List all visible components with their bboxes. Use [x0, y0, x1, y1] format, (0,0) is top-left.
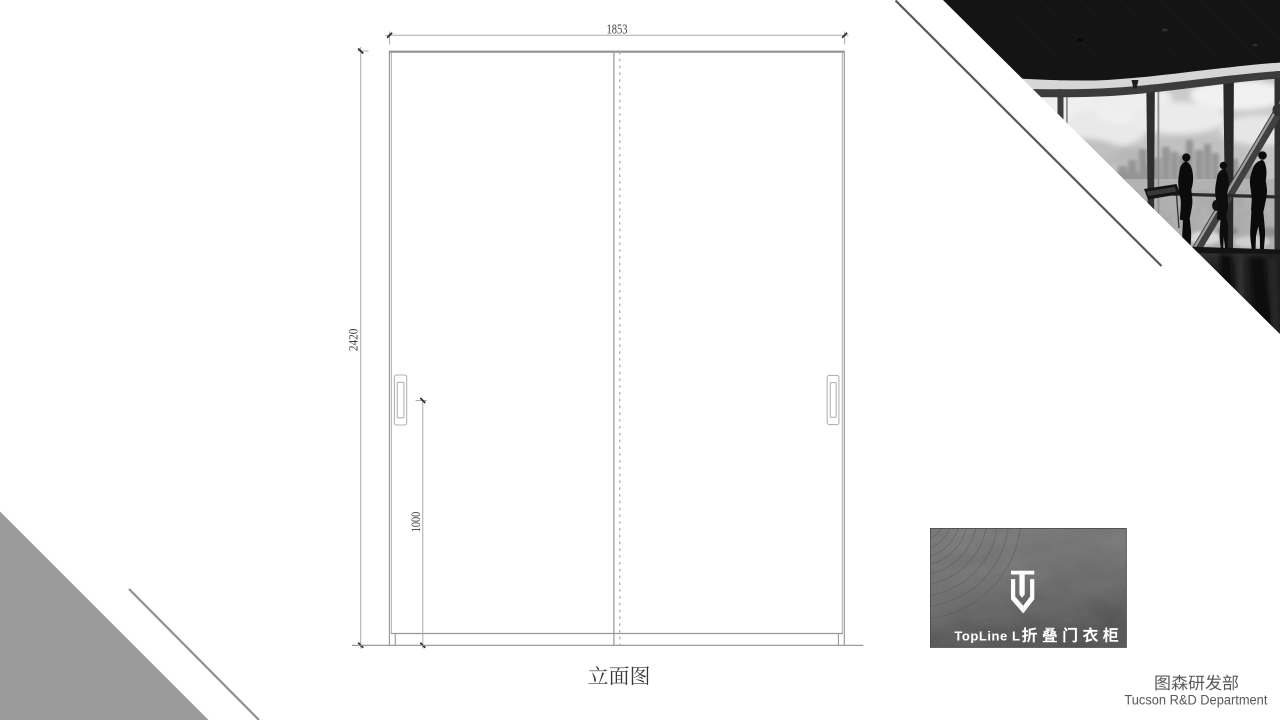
svg-text:2420: 2420	[346, 329, 361, 352]
svg-text:1000: 1000	[408, 512, 423, 533]
svg-text:1853: 1853	[607, 22, 628, 37]
svg-text:TopLine L: TopLine L	[954, 628, 1020, 643]
svg-text:Tucson R&D Department: Tucson R&D Department	[1124, 692, 1267, 708]
